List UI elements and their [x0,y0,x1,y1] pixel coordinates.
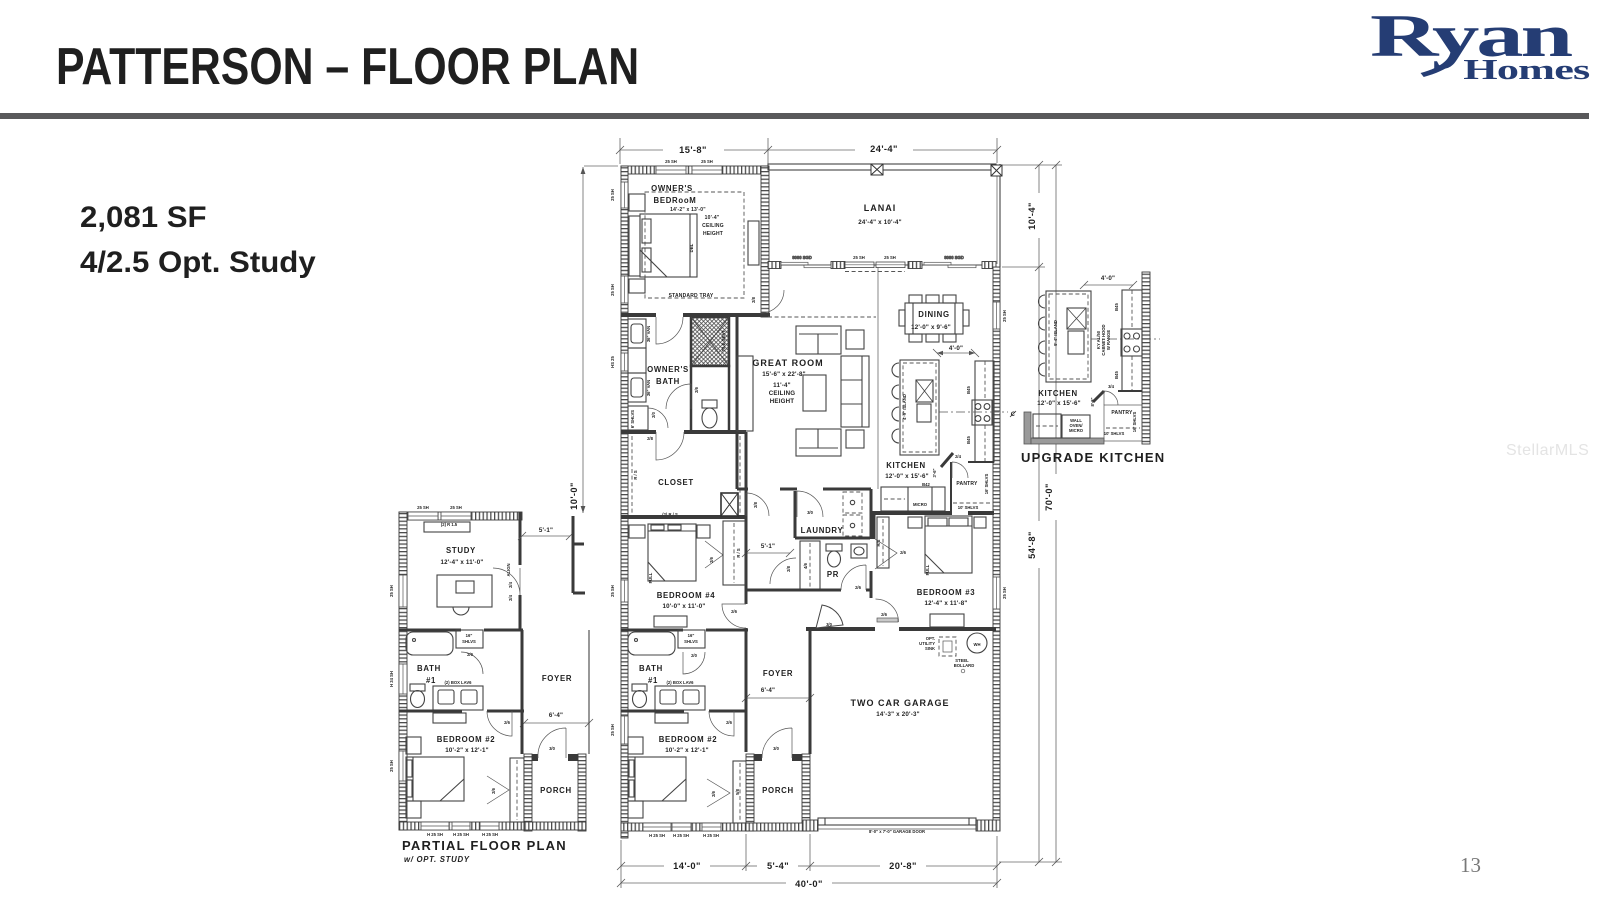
svg-text:54'-8": 54'-8" [1027,531,1037,559]
svg-text:STANDARD TRAY: STANDARD TRAY [669,293,714,299]
svg-text:25 SH: 25 SH [389,585,394,597]
svg-text:12'-0" x 9'-6": 12'-0" x 9'-6" [911,324,951,331]
svg-text:5'-4": 5'-4" [767,861,789,871]
svg-text:5/8: 5/8 [735,788,740,794]
svg-text:24'-4" x 10'-4": 24'-4" x 10'-4" [858,219,901,226]
svg-text:(2) BOX LAV6: (2) BOX LAV6 [667,680,695,685]
svg-text:#1: #1 [426,676,436,685]
svg-text:2/8: 2/8 [647,436,653,441]
svg-text:2/8: 2/8 [751,296,756,302]
svg-text:36" VAN: 36" VAN [646,380,651,396]
svg-text:BATH: BATH [417,664,441,673]
svg-text:25 SH: 25 SH [853,255,865,260]
svg-text:10'-2" x 12'-1": 10'-2" x 12'-1" [665,747,708,754]
svg-text:LAUNDRY: LAUNDRY [801,526,844,535]
svg-text:2,081 SF: 2,081 SF [80,201,207,234]
svg-text:KITCHEN: KITCHEN [886,461,926,470]
svg-text:25 SH: 25 SH [389,760,394,772]
svg-text:BEDRooM: BEDRooM [653,196,696,205]
svg-text:BATH: BATH [656,377,680,386]
svg-text:14'-3" x 20'-3": 14'-3" x 20'-3" [876,711,919,718]
svg-text:12'-0" x 15'-6": 12'-0" x 15'-6" [1037,400,1080,407]
svg-text:2/0: 2/0 [651,411,656,417]
svg-text:W RANGE: W RANGE [1106,330,1111,350]
svg-text:H 25 SH: H 25 SH [453,832,469,837]
svg-text:25 SH: 25 SH [417,505,429,510]
svg-text:R / S: R / S [633,470,638,480]
svg-text:#1: #1 [648,676,658,685]
svg-text:25 SH: 25 SH [610,724,615,736]
svg-text:2/6: 2/6 [900,550,906,555]
svg-text:2/6: 2/6 [726,720,732,725]
svg-text:H 25 SH: H 25 SH [703,833,719,838]
svg-text:ALIGN: ALIGN [506,563,511,576]
svg-text:3/0: 3/0 [549,746,555,751]
svg-text:2/8: 2/8 [753,501,758,507]
svg-text:2/4: 2/4 [955,454,961,459]
svg-text:2/8: 2/8 [786,565,791,571]
svg-text:9'-4" ISLAND: 9'-4" ISLAND [1053,320,1058,346]
svg-text:4/2.5 Opt. Study: 4/2.5 Opt. Study [80,246,316,279]
svg-text:15'-8": 15'-8" [679,145,707,155]
svg-text:24'-4": 24'-4" [870,144,898,154]
svg-text:2/0: 2/0 [467,652,473,657]
svg-text:B45: B45 [1114,370,1119,378]
svg-text:10' SHLVS: 10' SHLVS [958,505,979,510]
svg-text:2/6: 2/6 [855,585,861,590]
svg-text:PORCH: PORCH [762,786,794,795]
svg-text:25 SH: 25 SH [1002,587,1007,599]
svg-text:4'-0": 4'-0" [1101,275,1115,282]
svg-text:8080 SGD: 8080 SGD [792,255,812,260]
svg-text:H 25 SH: H 25 SH [482,832,498,837]
svg-text:OWNER'S: OWNER'S [647,365,689,374]
svg-text:B45: B45 [1114,302,1119,310]
svg-text:10' SHLVS: 10' SHLVS [1104,431,1125,436]
svg-text:8080 SGD: 8080 SGD [944,255,964,260]
svg-text:10'-0": 10'-0" [569,482,579,510]
svg-text:16' SHLVS: 16' SHLVS [1132,412,1137,433]
svg-text:16": 16" [466,633,473,638]
svg-text:10'-0" x 11'-0": 10'-0" x 11'-0" [662,603,705,610]
svg-text:12'-4" x 11'-0": 12'-4" x 11'-0" [440,559,483,566]
svg-text:4/6: 4/6 [803,562,808,568]
svg-text:OWNER'S: OWNER'S [651,184,693,193]
svg-text:2/4: 2/4 [508,594,513,600]
svg-text:3/0: 3/0 [826,622,832,627]
svg-text:CEILING: CEILING [769,390,796,397]
svg-text:BEDROOM #4: BEDROOM #4 [657,591,716,600]
svg-text:MICRO: MICRO [1069,428,1084,433]
svg-text:BEDROOM #2: BEDROOM #2 [437,735,496,744]
svg-text:16": 16" [688,633,695,638]
svg-text:SHLVS: SHLVS [462,639,476,644]
svg-text:GREAT ROOM: GREAT ROOM [752,358,823,368]
svg-text:TWO CAR GARAGE: TWO CAR GARAGE [851,698,950,708]
svg-text:6' SHLVS: 6' SHLVS [630,410,635,428]
svg-text:TILE SEAT: TILE SEAT [721,330,726,352]
svg-text:70'-0": 70'-0" [1044,483,1054,511]
svg-text:R / S: R / S [736,548,741,558]
svg-text:11'-4": 11'-4" [773,382,791,389]
svg-text:SINK: SINK [925,646,935,651]
svg-text:25 SH: 25 SH [450,505,462,510]
svg-text:2/4: 2/4 [508,581,513,587]
svg-text:8'-0" x 7'-0" GARAGE DOOR: 8'-0" x 7'-0" GARAGE DOOR [869,829,925,834]
svg-text:PANTRY: PANTRY [956,481,978,487]
svg-text:HEIGHT: HEIGHT [703,231,723,237]
svg-text:STUDY: STUDY [446,546,476,555]
svg-text:3/4: 3/4 [1108,384,1114,389]
svg-text:25 SH: 25 SH [884,255,896,260]
svg-text:PATTERSON – FLOOR PLAN: PATTERSON – FLOOR PLAN [56,38,639,96]
svg-text:B45: B45 [966,435,971,443]
svg-text:DINING: DINING [918,310,950,319]
svg-text:25 SH: 25 SH [701,159,713,164]
svg-text:CLOSET: CLOSET [658,478,694,487]
svg-text:6'-4": 6'-4" [549,712,563,719]
svg-text:2/6: 2/6 [504,720,510,725]
svg-text:B45: B45 [966,385,971,393]
svg-text:25 SH: 25 SH [665,159,677,164]
svg-text:CEILING: CEILING [702,223,724,229]
svg-text:25 SH: 25 SH [610,284,615,296]
svg-text:3/0: 3/0 [807,510,813,515]
svg-text:KITCHEN: KITCHEN [1038,389,1078,398]
svg-text:25 SH: 25 SH [1002,310,1007,322]
svg-text:2/6: 2/6 [881,612,887,617]
svg-text:10'-4": 10'-4" [705,215,720,221]
svg-text:2/6: 2/6 [731,609,737,614]
svg-text:WH: WH [974,642,981,647]
svg-text:3/0: 3/0 [773,746,779,751]
svg-text:(2) BOX LAV6: (2) BOX LAV6 [445,680,473,685]
svg-text:H 25 SH: H 25 SH [673,833,689,838]
svg-text:6'-4": 6'-4" [761,687,775,694]
svg-text:12'-0" x 15'-6": 12'-0" x 15'-6" [885,473,928,480]
svg-text:4'-0": 4'-0" [949,345,963,352]
svg-text:2/6: 2/6 [491,787,496,793]
svg-text:PORCH: PORCH [540,786,572,795]
svg-text:2/6: 2/6 [711,790,716,796]
svg-text:H 34 SH: H 34 SH [389,671,394,687]
svg-text:FULL: FULL [925,564,930,575]
svg-text:HEIGHT: HEIGHT [770,398,795,405]
svg-text:UPGRADE KITCHEN: UPGRADE KITCHEN [1021,450,1165,465]
svg-text:B42: B42 [922,482,930,487]
svg-text:10'-4": 10'-4" [1027,202,1037,230]
svg-text:LANAI: LANAI [864,203,897,213]
svg-text:3'-6": 3'-6" [932,468,937,477]
svg-text:5'-1": 5'-1" [761,543,775,550]
svg-text:HS 25: HS 25 [610,356,615,368]
svg-text:12'-4" x 11'-8": 12'-4" x 11'-8" [924,600,967,607]
svg-text:MICRO: MICRO [913,502,928,507]
svg-text:2/6: 2/6 [709,556,714,562]
svg-text:PR: PR [827,570,839,579]
svg-text:PARTIAL FLOOR PLAN: PARTIAL FLOOR PLAN [402,838,567,853]
svg-text:20'-8": 20'-8" [889,861,917,871]
svg-text:36" VAN: 36" VAN [646,326,651,342]
svg-text:FOYER: FOYER [542,674,572,683]
svg-text:BEDROOM #3: BEDROOM #3 [917,588,976,597]
svg-text:14'-2" x 13'-0": 14'-2" x 13'-0" [670,207,706,213]
svg-text:BOLLARD: BOLLARD [954,663,974,668]
svg-text:(2) R 1.5: (2) R 1.5 [441,522,458,527]
svg-text:2/6: 2/6 [694,386,699,392]
svg-text:w/ OPT. STUDY: w/ OPT. STUDY [404,855,470,864]
svg-text:FULL: FULL [648,572,653,583]
svg-text:SHLVS: SHLVS [684,639,698,644]
svg-text:PANTRY: PANTRY [1111,410,1133,416]
svg-text:H 25 SH: H 25 SH [427,832,443,837]
svg-text:15'-6" x 22'-8": 15'-6" x 22'-8" [762,371,805,378]
svg-text:H 25 SH: H 25 SH [649,833,665,838]
svg-text:BEDROOM #2: BEDROOM #2 [659,735,718,744]
svg-text:10'-2" x 12'-1": 10'-2" x 12'-1" [445,747,488,754]
svg-text:2/0: 2/0 [691,653,697,658]
svg-text:25 SH: 25 SH [610,585,615,597]
svg-text:FOYER: FOYER [763,669,793,678]
svg-text:14'-0": 14'-0" [673,861,701,871]
svg-text:25 SH: 25 SH [610,189,615,201]
svg-text:16' SHLVS: 16' SHLVS [984,474,989,495]
svg-text:DBL: DBL [689,243,694,252]
svg-text:4'-9" ISLAND: 4'-9" ISLAND [902,394,907,420]
svg-text:40'-0": 40'-0" [795,879,823,889]
svg-text:BATH: BATH [639,664,663,673]
svg-text:5'-1": 5'-1" [539,527,553,534]
